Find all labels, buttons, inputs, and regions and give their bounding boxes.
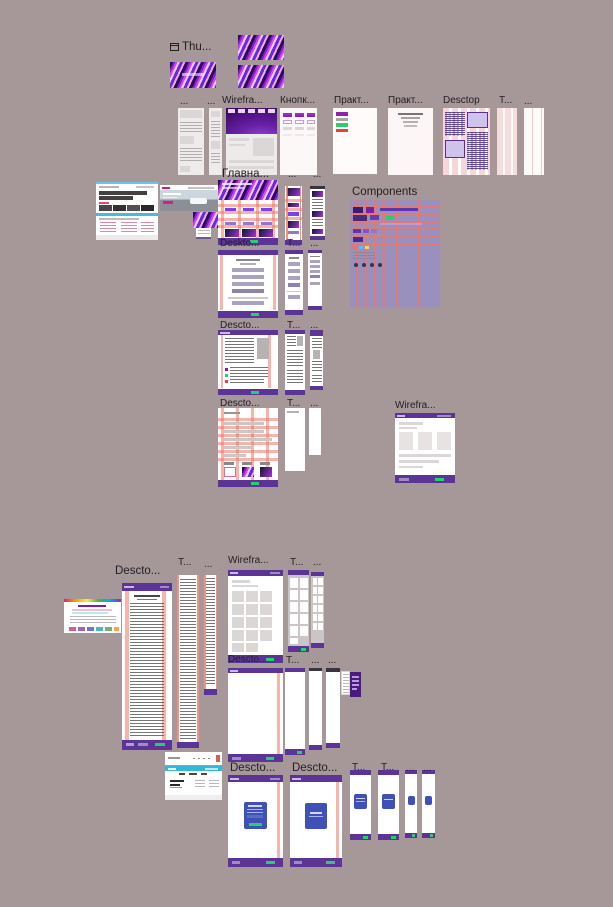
row-guide (218, 434, 278, 437)
form-field (232, 282, 264, 286)
card-thumb (312, 211, 323, 217)
footer-green-chip (251, 313, 259, 316)
row-guide (218, 418, 278, 421)
button-sample-gray (295, 127, 304, 130)
grid-block (300, 614, 308, 624)
status-bar (309, 668, 322, 671)
wireframe-block (211, 111, 220, 117)
frame-form-desktop[interactable] (218, 250, 278, 318)
grid-block (260, 630, 272, 641)
component-dropdown-panel[interactable] (341, 671, 350, 695)
doc-body-text (130, 603, 164, 737)
frame-components[interactable] (350, 200, 440, 307)
component-swatch (366, 207, 374, 213)
footer-chip (126, 743, 134, 746)
footer-bar (218, 480, 278, 487)
grid-block (313, 623, 318, 630)
button-sample-gray (307, 127, 315, 130)
row-block (399, 454, 451, 457)
grid-block (232, 604, 244, 615)
form-field (288, 276, 300, 280)
thumbnail-caption-line (182, 73, 204, 76)
frame-tablet-pink[interactable] (497, 108, 517, 175)
grid-block (318, 605, 323, 612)
status-bar (326, 668, 340, 672)
thumbnails-section-label[interactable]: Thu... (170, 41, 226, 53)
gradient-thumbnail-3[interactable] (238, 65, 284, 88)
component-bar (380, 223, 422, 225)
card-thumb (99, 205, 112, 211)
article-text (287, 336, 296, 348)
footer-bar (309, 745, 322, 750)
frame-article-desktop[interactable] (218, 330, 278, 395)
screenshot-cyan-website[interactable] (165, 766, 222, 800)
frame-label[interactable]: T... (287, 320, 300, 331)
form-field (310, 270, 320, 273)
frame-login-desktop-2[interactable] (290, 775, 342, 867)
header-nav-chip (437, 415, 451, 417)
frame-homepage-tablet[interactable] (285, 186, 302, 245)
doc-title-line (134, 595, 160, 597)
header-nav-chip (270, 572, 280, 574)
car-image (190, 198, 207, 204)
frame-blank-mobile-2[interactable] (326, 668, 340, 748)
screenshot-browser-bar[interactable] (165, 752, 222, 765)
frame-document-desktop[interactable] (122, 583, 172, 750)
frame-mobile-pink[interactable] (524, 108, 544, 175)
card-thumb (141, 205, 154, 211)
frame-wireframe-hero[interactable] (226, 108, 277, 175)
header-nav-chip (270, 778, 280, 780)
url-text (168, 757, 180, 759)
footer-chip (399, 478, 409, 481)
frame-label[interactable]: T... (499, 95, 512, 106)
frame-label[interactable]: T... (178, 557, 191, 568)
frame-buttons[interactable] (280, 108, 317, 175)
paragraph-lines (70, 616, 116, 625)
collage-text-block (445, 112, 465, 136)
component-swatch (353, 207, 363, 213)
heading-block (232, 580, 250, 583)
footer-green-chip (266, 757, 274, 760)
card-thumb (259, 229, 273, 237)
frame-label[interactable]: Descto... (220, 320, 274, 331)
button-sample-light (307, 134, 315, 136)
column-guide (336, 782, 339, 858)
column-guide (300, 186, 302, 241)
footer-green-chip (412, 834, 415, 837)
frame-label[interactable]: Главна... (222, 168, 278, 180)
frame-label[interactable]: Кнопк... (280, 95, 318, 106)
grid-block (300, 626, 308, 636)
frame-wireframe-strip-1[interactable] (178, 108, 204, 175)
button-sample-gray (283, 127, 292, 130)
tab-chip (228, 109, 235, 113)
screenshot-website-car-hero[interactable] (160, 185, 218, 211)
footer-band (96, 235, 158, 240)
pink-text-column (141, 222, 154, 232)
grid-block (318, 578, 323, 585)
frame-grid-desktop[interactable] (218, 408, 278, 487)
column-guide (221, 335, 223, 388)
component-swatch (353, 215, 367, 221)
component-swatch (371, 229, 377, 233)
component-dot (362, 263, 366, 267)
phone-placeholder (257, 338, 269, 359)
screenshot-mini-white[interactable] (196, 228, 211, 239)
wireframe-block (229, 160, 274, 163)
button-sample-outline (295, 120, 304, 124)
wireframe-text-lines (211, 121, 220, 137)
wireframe-text-lines (180, 148, 202, 162)
card-thumb (113, 205, 126, 211)
screenshot-rainbow-doc[interactable] (64, 599, 121, 633)
frame-label[interactable]: Практ... (388, 95, 434, 106)
design-canvas[interactable]: Thu... ... ... Wirefra... Кнопк... Практ… (0, 0, 613, 907)
gradient-thumbnail-1[interactable] (238, 35, 284, 60)
frame-label[interactable]: ... (180, 96, 188, 107)
browser-accent-square (216, 755, 220, 762)
frame-grid-tablet[interactable] (285, 408, 305, 471)
frame-label[interactable]: ... (311, 655, 319, 666)
button-sample (295, 113, 304, 117)
article-text (225, 338, 254, 364)
frame-label[interactable]: Descto... (292, 762, 348, 774)
column-guide (396, 200, 398, 307)
logo-chip (162, 187, 170, 189)
frame-wireframe-strip-2[interactable] (209, 108, 222, 175)
header-nav-chip (160, 586, 169, 588)
purple-chip (261, 208, 272, 211)
form-button (288, 283, 300, 287)
row-block (399, 460, 439, 463)
nav-item (201, 773, 207, 775)
form-field (288, 262, 300, 266)
header-nav-chip (205, 768, 218, 770)
button-sample-light (283, 134, 292, 136)
footer-bar (204, 689, 217, 695)
frame-label[interactable]: ... (313, 169, 321, 180)
article-text (312, 375, 322, 383)
wireframe-block (211, 141, 220, 149)
mini-thumb (96, 627, 103, 631)
grid-block (290, 638, 298, 644)
tab-chip (238, 109, 245, 113)
image-thumb-outline (224, 467, 236, 477)
article-text (287, 370, 303, 384)
frame-blank-mobile-1[interactable] (309, 668, 322, 750)
component-mini (365, 246, 369, 249)
swatch-purple (336, 112, 348, 116)
header-bar (218, 250, 278, 255)
login-card (354, 794, 367, 809)
column-guide (273, 255, 276, 310)
grid-block (232, 591, 244, 602)
card-thumb (225, 229, 239, 237)
header-bar (288, 570, 309, 575)
menu-lines (343, 674, 349, 693)
doc-body-text (206, 578, 215, 686)
grid-block (232, 630, 244, 641)
frame-label[interactable]: T... (352, 762, 365, 773)
frame-login-tablet-2[interactable] (378, 770, 399, 840)
article-text (287, 350, 303, 366)
frame-blank-tablet[interactable] (285, 668, 305, 755)
frame-label-components[interactable]: Components (352, 186, 432, 198)
doc-title-line (137, 599, 157, 601)
frame-document-tablet[interactable] (177, 575, 199, 748)
screenshot-website-dark-cards[interactable] (96, 182, 158, 213)
header-text-chip (230, 572, 238, 574)
wireframe-text-lines (211, 153, 220, 165)
button-sample-outline (283, 120, 292, 124)
frame-label[interactable]: Deskto... (220, 238, 274, 249)
collage-screenshot (445, 140, 465, 158)
frame-label[interactable]: Descto... (115, 565, 173, 577)
header-text-chip (124, 586, 134, 588)
row-guide (350, 244, 440, 246)
frame-login-mobile-2[interactable] (422, 770, 435, 838)
grid-block (246, 604, 258, 615)
grid-block (260, 591, 272, 602)
row-block (399, 466, 423, 468)
column-guide (277, 782, 280, 858)
list-bullet-green (225, 374, 228, 377)
row-guide (218, 211, 278, 214)
headline-bar (99, 196, 133, 200)
frame-label[interactable]: Descto... (230, 762, 286, 774)
frame-label[interactable]: ... (288, 169, 296, 180)
title-line (78, 605, 106, 607)
list-text (230, 367, 268, 371)
frame-wireframe-grid-tablet[interactable] (288, 570, 309, 652)
frame-label[interactable]: T... (381, 762, 394, 773)
hero-text-line (163, 193, 181, 195)
frame-label[interactable]: ... (207, 96, 215, 107)
frame-label[interactable]: T... (287, 398, 300, 409)
pink-text-column (100, 222, 116, 232)
wireframe-block (180, 110, 202, 118)
frame-form-tablet[interactable] (285, 250, 303, 315)
login-title-line (384, 799, 393, 800)
pink-text-column (121, 222, 137, 232)
frame-article-mobile[interactable] (310, 330, 323, 390)
frame-document-mobile[interactable] (204, 575, 217, 695)
nav-item (189, 773, 197, 775)
heading-line (240, 263, 256, 265)
grid-block (313, 596, 318, 603)
button-sample-light (295, 134, 304, 136)
form-field (310, 265, 320, 268)
grid-block (246, 630, 258, 641)
purple-chip (288, 231, 299, 234)
text-column (209, 780, 219, 788)
frame-label[interactable]: ... (328, 655, 336, 666)
grid-block (290, 602, 298, 612)
frame-label[interactable]: ... (406, 763, 414, 774)
frame-blank-desktop[interactable] (228, 668, 283, 762)
frame-label[interactable]: ... (524, 96, 532, 107)
form-field (310, 282, 320, 285)
frame-login-desktop-1[interactable] (228, 775, 283, 867)
row-guide (350, 236, 440, 238)
nav-item (179, 773, 185, 775)
frame-label[interactable]: Wirefra... (222, 95, 274, 106)
mini-thumb (87, 627, 94, 631)
grid-block (232, 643, 244, 652)
gradient-thumbnail-2[interactable] (170, 62, 216, 88)
rainbow-bar (64, 599, 121, 602)
grid-block (290, 614, 298, 624)
screenshot-website-sections[interactable] (96, 214, 158, 240)
label-chip (224, 462, 234, 465)
frame-homepage-mobile[interactable] (310, 186, 325, 240)
collage-text-block (467, 132, 488, 170)
nav-line (188, 187, 214, 189)
hero-banner (287, 188, 300, 196)
headline-bar (170, 780, 184, 782)
login-card (425, 796, 432, 805)
window-icon (170, 43, 179, 51)
frame-wireframe-grid-desktop[interactable] (228, 570, 283, 663)
article-text (312, 361, 322, 373)
frame-desktop-collage[interactable] (443, 108, 490, 175)
footer-green-chip (266, 861, 275, 864)
card-line (352, 688, 357, 690)
grid-block (246, 591, 258, 602)
frame-login-mobile-1[interactable] (405, 770, 417, 838)
heading-line (236, 259, 260, 261)
frame-label[interactable]: T... (286, 655, 299, 666)
frame-homepage-desktop[interactable] (218, 180, 278, 245)
list-bullet-purple (225, 368, 228, 371)
row-guide (285, 217, 302, 220)
frame-label[interactable]: ... (204, 559, 212, 570)
nav-line (99, 218, 139, 220)
form-field (288, 269, 300, 273)
frame-label[interactable]: ... (310, 238, 318, 249)
button-sample (307, 113, 315, 117)
frame-label[interactable]: Практ... (334, 95, 379, 106)
column-guide (177, 575, 179, 748)
highlight-line-cyan (72, 612, 108, 614)
form-field (224, 430, 264, 433)
list-bullet-red (225, 380, 228, 383)
card-block (399, 432, 413, 450)
column-guide (418, 200, 420, 307)
grid-block (313, 605, 318, 612)
row-guide (285, 208, 302, 211)
frame-label[interactable]: T... (290, 557, 303, 568)
row-guide (285, 199, 302, 202)
footer-chip (138, 743, 148, 746)
grid-block (313, 587, 318, 594)
footer-bar (310, 386, 323, 390)
row-guide (218, 426, 278, 429)
component-dot (370, 263, 374, 267)
login-card (408, 796, 415, 805)
frame-wireframe-grid-mobile[interactable] (311, 572, 324, 648)
frame-label[interactable]: Wirefra... (395, 400, 449, 411)
frame-label[interactable]: T... (287, 238, 300, 249)
purple-chip (225, 222, 236, 225)
grid-block (232, 617, 244, 628)
mini-thumb (69, 627, 76, 631)
footer-bar (285, 390, 305, 395)
frame-wireframe-catalog[interactable] (395, 413, 455, 483)
hero-banner (312, 191, 323, 197)
headline-bar (99, 191, 147, 195)
login-title-line (310, 812, 322, 814)
form-field (224, 438, 272, 441)
image-thumb-gradient (242, 467, 254, 477)
text-lines (198, 230, 210, 236)
header-text-chip (220, 332, 230, 334)
frame-label[interactable]: ... (423, 763, 431, 774)
wireframe-block (229, 144, 245, 146)
card-line (352, 684, 359, 686)
footer-green-chip (435, 478, 444, 481)
frame-color-swatches[interactable] (333, 108, 377, 174)
frame-label[interactable]: ... (310, 320, 318, 331)
card-thumb (242, 229, 256, 237)
grid-block (246, 617, 258, 628)
footer-bar (311, 643, 324, 648)
wireframe-block (229, 138, 249, 141)
frame-login-tablet-1[interactable] (350, 770, 371, 840)
screenshot-mini-purple[interactable] (193, 212, 218, 228)
form-field (232, 268, 264, 272)
frame-article-tablet[interactable] (285, 330, 305, 395)
heading-line (224, 412, 240, 414)
wireframe-text-lines (180, 122, 202, 132)
frame-label[interactable]: Wirefra... (228, 555, 284, 566)
component-text (353, 252, 375, 260)
grid-block (318, 587, 323, 594)
form-field (232, 275, 264, 279)
heading-line (289, 257, 299, 259)
frame-grid-mobile[interactable] (309, 408, 321, 455)
frame-form-mobile[interactable] (308, 250, 322, 310)
doc-body-text (180, 579, 196, 739)
form-field (224, 422, 264, 425)
footer-bar (405, 833, 417, 838)
text-lines (312, 219, 323, 227)
mini-thumb (114, 627, 119, 631)
text-lines (312, 199, 323, 209)
wireframe-block (180, 136, 194, 144)
frame-label[interactable]: Descto... (228, 654, 284, 665)
column-guide (277, 673, 280, 754)
login-button (249, 823, 262, 826)
wireframe-block (180, 166, 190, 172)
footer-green-chip (326, 861, 335, 864)
frame-label[interactable]: ... (313, 557, 321, 568)
heading-block (399, 427, 417, 429)
frame-label[interactable]: ... (310, 398, 318, 409)
form-field (232, 301, 264, 305)
purple-chip (243, 222, 254, 225)
column-guide (197, 575, 199, 748)
frame-typography[interactable] (388, 108, 433, 175)
grid-block (313, 578, 318, 585)
frame-label[interactable]: Desctop (443, 95, 491, 106)
component-purple-card[interactable] (350, 672, 361, 697)
grid-block (300, 602, 308, 612)
frame-label[interactable]: Descto... (220, 398, 274, 409)
grid-block (260, 604, 272, 615)
divider-line (287, 291, 301, 292)
